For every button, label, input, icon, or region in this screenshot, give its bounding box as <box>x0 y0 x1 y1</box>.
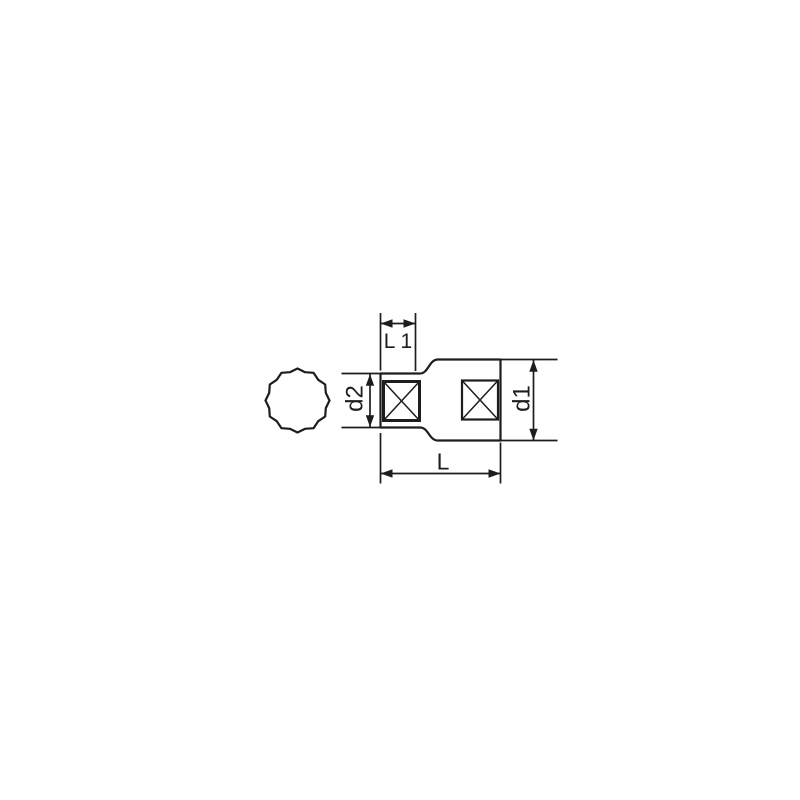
socket-side-view-outline <box>381 360 501 441</box>
l1-arrowhead-left <box>381 319 393 327</box>
dimension-label-l1: L 1 <box>384 330 412 353</box>
d1-arrowhead-bottom <box>529 429 537 441</box>
page: L 1 d2 d1 L <box>0 0 800 800</box>
l1-arrowhead-right <box>404 319 416 327</box>
dimension-label-d1: d1 <box>509 385 536 412</box>
drive-square-small-cross <box>384 382 420 421</box>
d2-arrowhead-bottom <box>366 415 374 427</box>
dimension-label-l: L <box>437 449 450 475</box>
twelve-point-profile-icon <box>266 369 330 433</box>
d1-arrowhead-top <box>529 360 537 372</box>
l-arrowhead-right <box>489 469 501 477</box>
dimension-label-d2: d2 <box>342 385 369 412</box>
d2-arrowhead-top <box>366 374 374 386</box>
drive-square-large-cross <box>462 381 498 420</box>
l-arrowhead-left <box>381 469 393 477</box>
socket-technical-drawing: L 1 d2 d1 L <box>0 0 800 800</box>
